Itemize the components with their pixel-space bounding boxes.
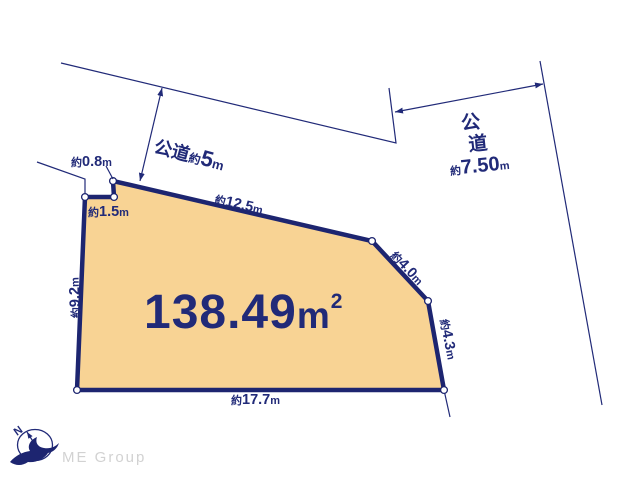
dim-label-1-5: 約1.5m: [88, 204, 129, 220]
right-road-name-char2: 道: [467, 131, 488, 156]
compass: N: [10, 424, 59, 465]
dim-value: 0.8: [82, 154, 102, 170]
area-unit: m: [297, 295, 331, 336]
dim-value: 9.2: [67, 287, 84, 308]
road-width-unit: m: [499, 160, 510, 173]
vertex-dot: [82, 194, 89, 201]
right-road-name-char1: 公: [460, 111, 481, 135]
road-width-value: 7.50: [460, 153, 501, 179]
dim-prefix: 約: [71, 155, 82, 169]
dim-unit: m: [270, 395, 280, 407]
vertex-dot: [111, 194, 118, 201]
dim-label-17-7: 約17.7m: [231, 392, 280, 408]
top-road-upper-edge-line: [61, 63, 396, 143]
vertex-dot: [441, 387, 448, 394]
right-road-width-label: 約7.50m: [449, 152, 511, 180]
dim-unit: m: [119, 207, 129, 219]
dim-prefix: 約: [231, 393, 242, 407]
vertex-dot: [425, 298, 432, 305]
north-label: N: [12, 424, 26, 438]
dim-label-0-8: 約0.8m: [71, 154, 112, 170]
dim-label-9-2: 約9.2m: [67, 277, 84, 319]
road-width-unit: m: [210, 156, 225, 173]
dim-value: 1.5: [99, 204, 119, 220]
lot-diagram: 約0.8m 約1.5m 約9.2m 約17.7m 約12.5m 約4.0m 約4…: [0, 0, 640, 480]
road-name: 公道: [152, 136, 192, 166]
dim-prefix: 約: [69, 307, 83, 318]
dim-prefix: 約: [88, 205, 99, 219]
dim-unit: m: [443, 349, 457, 361]
dim-unit: m: [102, 157, 112, 169]
watermark-text: ME Group: [62, 449, 146, 466]
right-road-edge-line: [540, 61, 602, 405]
vertex-dot: [369, 238, 376, 245]
top-road-label: 公道約5m: [152, 133, 228, 176]
top-road-width-arrow: [140, 88, 162, 181]
area-value: 138.49: [144, 286, 297, 339]
dim-unit: m: [70, 277, 82, 287]
vertex-dot: [74, 387, 81, 394]
dim-value: 17.7: [242, 392, 270, 408]
right-road-label: 公 道 約7.50m: [444, 108, 511, 180]
lot-diagram-canvas: 約0.8m 約1.5m 約9.2m 約17.7m 約12.5m 約4.0m 約4…: [0, 0, 640, 480]
boundary-extension-line: [444, 390, 450, 417]
area-sup: 2: [331, 290, 344, 313]
right-road-width-arrow: [395, 84, 543, 112]
